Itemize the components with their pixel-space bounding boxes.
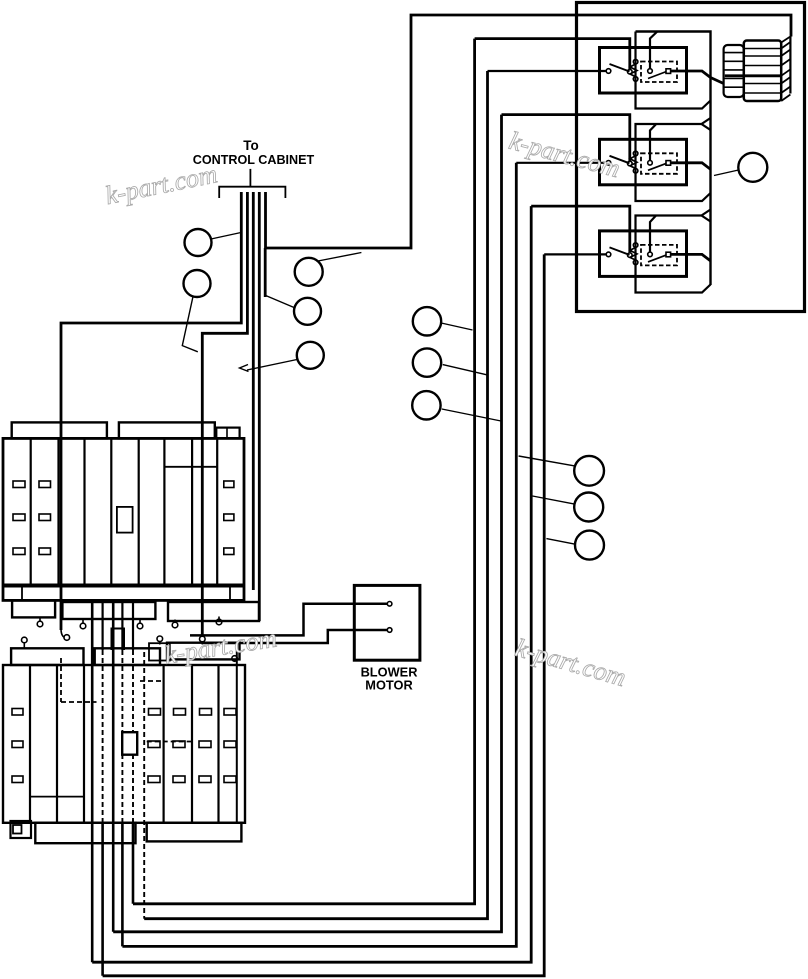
svg-text:k-part.com: k-part.com xyxy=(506,126,623,183)
svg-text:k-part.com: k-part.com xyxy=(512,633,629,692)
svg-text:MOTOR: MOTOR xyxy=(365,678,412,693)
svg-text:k-part.com: k-part.com xyxy=(103,159,220,210)
svg-text:To: To xyxy=(243,138,259,153)
svg-text:k-part.com: k-part.com xyxy=(162,623,279,669)
